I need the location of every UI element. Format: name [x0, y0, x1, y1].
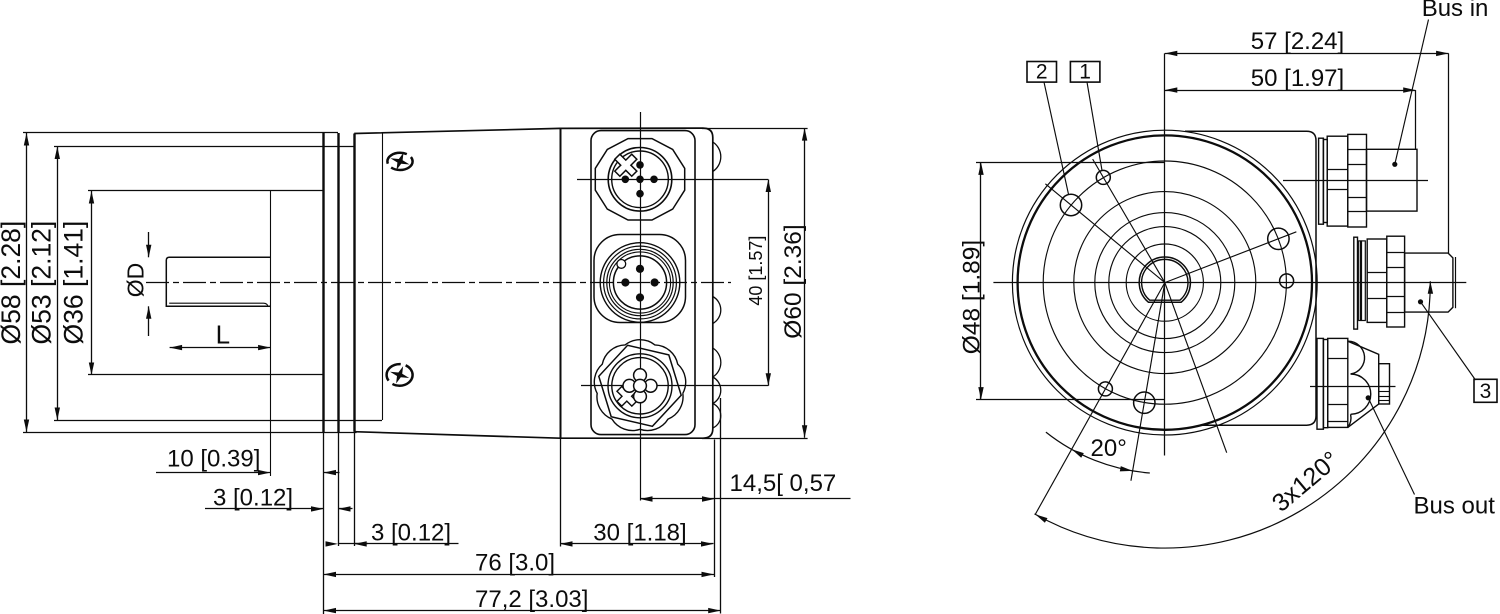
svg-text:30 [1.18]: 30 [1.18]	[593, 520, 686, 547]
svg-text:3 [0.12]: 3 [0.12]	[213, 485, 293, 512]
svg-text:57 [2.24]: 57 [2.24]	[1251, 28, 1344, 55]
svg-text:1: 1	[1079, 61, 1091, 84]
svg-text:Ø36 [1.41]: Ø36 [1.41]	[59, 221, 89, 345]
svg-text:14,5[ 0,57: 14,5[ 0,57	[730, 470, 837, 497]
svg-text:Ø48 [1.89]: Ø48 [1.89]	[959, 240, 986, 354]
svg-text:50 [1.97]: 50 [1.97]	[1251, 65, 1344, 92]
svg-text:Ø53 [2.12]: Ø53 [2.12]	[26, 221, 56, 345]
svg-text:ØD: ØD	[123, 263, 149, 298]
svg-text:20°: 20°	[1091, 435, 1127, 462]
svg-text:3 [0.12]: 3 [0.12]	[371, 520, 451, 547]
svg-text:Bus in: Bus in	[1422, 0, 1489, 22]
svg-text:Ø60 [2.36]: Ø60 [2.36]	[780, 224, 807, 338]
svg-text:10 [0.39]: 10 [0.39]	[167, 445, 260, 472]
svg-text:Ø58 [2.28]: Ø58 [2.28]	[0, 221, 26, 345]
svg-text:L: L	[216, 320, 230, 350]
svg-text:2: 2	[1036, 61, 1048, 84]
svg-text:76 [3.0]: 76 [3.0]	[475, 550, 555, 577]
svg-text:3: 3	[1480, 380, 1492, 403]
svg-text:40 [1.57]: 40 [1.57]	[746, 236, 766, 306]
svg-text:77,2 [3.03]: 77,2 [3.03]	[475, 586, 588, 613]
svg-text:Bus out: Bus out	[1414, 493, 1496, 520]
